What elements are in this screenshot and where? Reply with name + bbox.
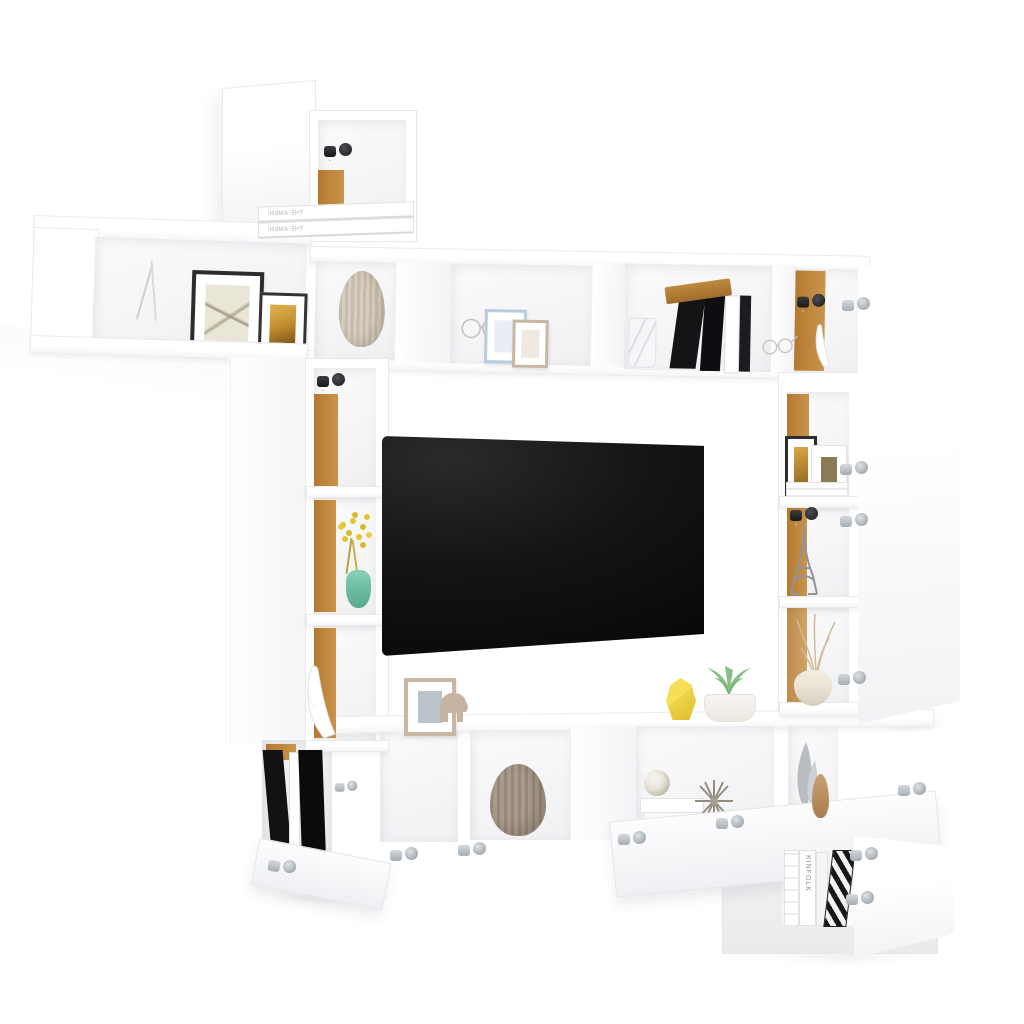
flap-hinge — [390, 846, 420, 864]
white-book — [724, 295, 740, 373]
yellow-flower-bouquet — [322, 514, 374, 578]
left-column-hinge — [317, 372, 347, 390]
flap-hinge — [898, 781, 928, 799]
white-book — [784, 850, 799, 926]
flap-hinge — [716, 814, 746, 832]
tv-screen — [382, 436, 704, 656]
beige-photo-frame — [512, 320, 549, 369]
left-column-oak-back — [314, 394, 338, 488]
tall-door-hinge — [838, 670, 868, 688]
flap-hinge — [458, 841, 488, 859]
right-column-hinge — [790, 506, 820, 524]
botanical-art — [204, 284, 250, 341]
black-book — [298, 750, 326, 852]
tall-door-hinge — [840, 512, 870, 530]
upper-bridge-shelf — [308, 246, 868, 386]
flap-hinge — [335, 780, 359, 794]
succulent-leaves — [702, 662, 756, 698]
flower-dots — [340, 522, 346, 528]
wire-glasses-icon — [758, 328, 799, 365]
kinfolk-spine-label: KINFOLK — [804, 855, 811, 925]
gold-art — [269, 304, 296, 343]
beige-frame-art — [521, 330, 539, 358]
white-book-stack-top: THE AMERI THE AMERI — [258, 201, 414, 242]
bridge-hinge — [797, 293, 827, 312]
product-photo-canvas: THE AMERI THE AMERI — [0, 0, 1024, 1024]
tall-cabinet-open-door — [858, 264, 960, 724]
lower-compartment — [380, 732, 458, 842]
left-column-shelf — [306, 614, 388, 626]
bridge-divider — [394, 262, 454, 363]
marble-canister — [628, 318, 657, 368]
teal-bottle-vase — [346, 570, 371, 608]
left-column-shelf — [306, 486, 388, 498]
black-book — [739, 296, 751, 372]
bridge-divider — [590, 263, 628, 368]
eiffel-tower-figurine — [788, 522, 820, 598]
white-antler-ornament — [808, 321, 831, 369]
textured-sphere-ornament — [644, 770, 670, 796]
kinfolk-book: KINFOLK — [799, 850, 816, 926]
corner-door-hinge — [850, 846, 880, 864]
tall-door-hinge — [842, 296, 872, 314]
succulent-pot — [704, 694, 756, 722]
faceted-yellow-vase — [666, 678, 696, 720]
elephant-figurine — [436, 686, 470, 724]
corner-door-hinge — [846, 890, 876, 908]
top-cabinet-hinge — [324, 142, 354, 160]
book-spine-label: THE AMERI — [267, 226, 303, 233]
flower-stems — [352, 540, 359, 574]
right-column-bottom-board — [779, 702, 871, 716]
book-spine-label: THE AMERI — [267, 210, 303, 217]
upper-left-end-panel — [30, 227, 100, 343]
white-antler-ornament — [294, 656, 336, 740]
flap-hinge — [618, 830, 648, 848]
tall-door-hinge — [840, 460, 870, 478]
